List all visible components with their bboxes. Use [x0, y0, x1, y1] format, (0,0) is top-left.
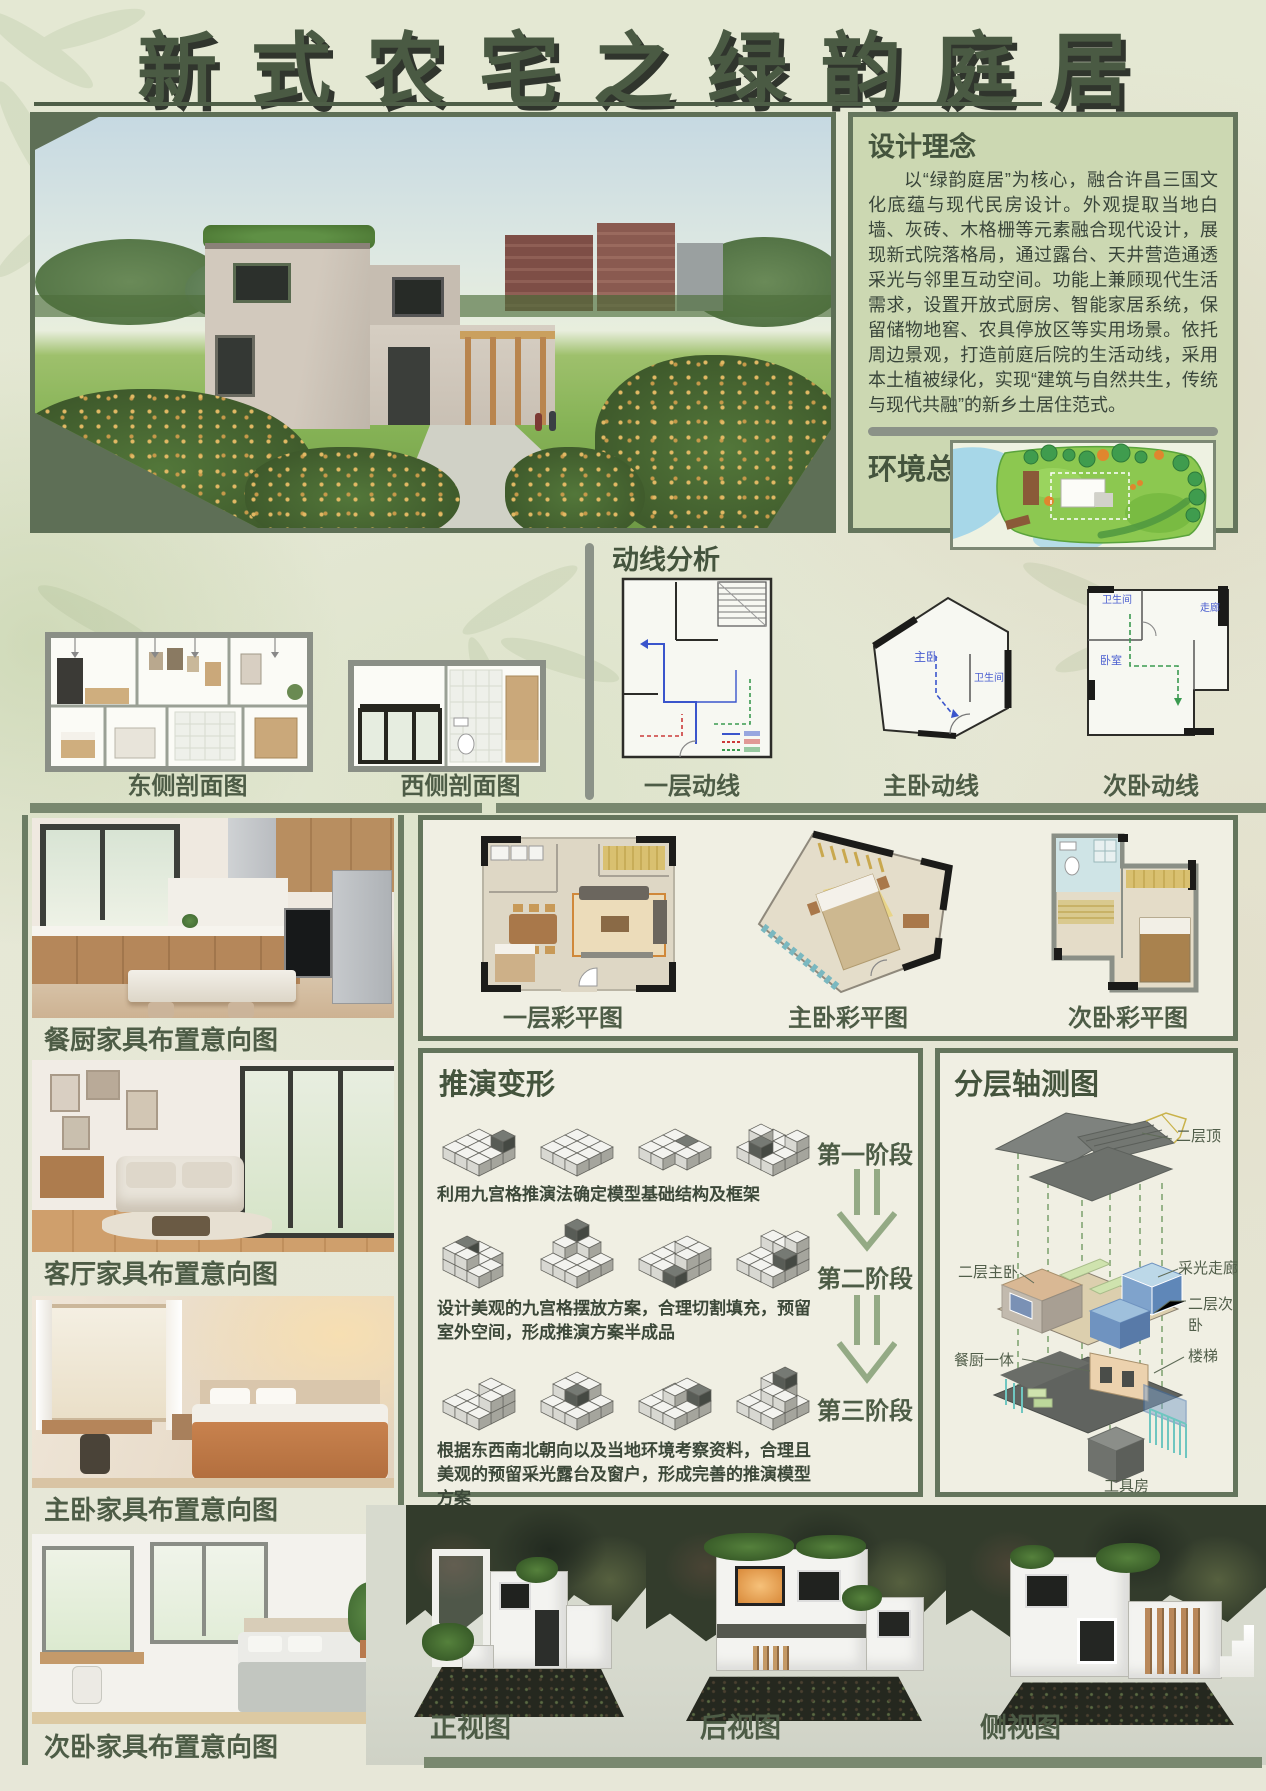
stage-2-label: 第二阶段	[813, 1259, 917, 1294]
axon-label-roof: 二层顶	[1176, 1125, 1221, 1146]
master-plan-caption: 主卧彩平图	[758, 998, 938, 1033]
house-porch-volume	[370, 325, 555, 425]
floor1-plan-caption: 一层彩平图	[473, 998, 653, 1033]
down-arrow-icon	[833, 1169, 897, 1253]
cube-row-stage1	[433, 1099, 819, 1179]
circulation-diagram-second: 卫生间 走廊 卧室	[1078, 570, 1238, 745]
floor1-color-plan	[481, 836, 676, 997]
model-side-caption: 侧视图	[980, 1706, 1061, 1745]
color-plans-panel: 一层彩平图 主卧彩平图 次卧彩平图	[418, 815, 1238, 1041]
kitchen-caption: 餐厨家具布置意向图	[44, 1020, 278, 1057]
design-concept-body: 以“绿韵庭居”为核心，融合许昌三国文化底蕴与现代民房设计。外观提取当地白墙、灰砖…	[868, 168, 1218, 418]
house-upper-box	[370, 265, 460, 325]
divider-bar	[496, 803, 1266, 813]
second-bedroom-caption: 次卧家具布置意向图	[44, 1727, 278, 1764]
poster-page: 新式农宅之绿韵庭居	[0, 0, 1266, 1791]
master-bedroom-photo	[32, 1296, 394, 1488]
second-color-plan	[1048, 830, 1203, 1001]
circulation-diagram-floor1	[618, 574, 776, 762]
cube-row-stage3	[433, 1353, 819, 1433]
master-bedroom-caption: 主卧家具布置意向图	[44, 1490, 278, 1527]
axon-label-master: 二层主卧	[958, 1261, 1018, 1282]
bottom-divider-bar	[424, 1757, 1262, 1768]
derivation-note-3: 根据东西南北朝向以及当地环境考察资料，合理且美观的预留采光露台及窗户，形成完善的…	[437, 1439, 825, 1511]
axon-label-kitchen: 餐厨一体	[954, 1349, 1014, 1370]
cube-row-stage2	[433, 1211, 819, 1291]
stage-1-label: 第一阶段	[813, 1135, 917, 1170]
title-underline	[34, 102, 1042, 106]
living-room-photo	[32, 1060, 394, 1252]
derivation-note-1: 利用九宫格推演法确定模型基础结构及框架	[437, 1183, 819, 1207]
model-front-caption: 正视图	[430, 1706, 511, 1745]
person-figure	[549, 411, 556, 431]
living-caption: 客厅家具布置意向图	[44, 1254, 278, 1291]
west-section-caption: 西侧剖面图	[368, 766, 553, 801]
kitchen-dining-photo	[32, 818, 394, 1018]
divider-bar	[868, 427, 1218, 436]
design-concept-heading: 设计理念	[868, 125, 1218, 164]
axonometric-panel: 分层轴测图	[935, 1048, 1238, 1497]
second-plan-caption: 次卧彩平图	[1038, 998, 1218, 1033]
room-label-sub-bath: 卫生间	[1102, 596, 1132, 606]
circulation-heading: 动线分析	[612, 538, 720, 577]
person-figure	[535, 413, 542, 431]
east-section-drawing	[45, 632, 313, 777]
derivation-heading: 推演变形	[439, 1061, 555, 1103]
master-color-plan	[753, 830, 953, 1001]
room-label-master: 主卧	[914, 652, 938, 662]
east-section-caption: 东侧剖面图	[95, 766, 280, 801]
west-section-drawing	[348, 660, 546, 777]
model-back-caption: 后视图	[700, 1706, 781, 1745]
axon-label-second-bed: 二层次卧	[1188, 1293, 1234, 1335]
site-plan-image	[950, 440, 1216, 550]
divider-bar	[30, 803, 482, 813]
axon-label-tool-room: 工具房	[1104, 1475, 1149, 1496]
derivation-note-2: 设计美观的九宫格摆放方案，合理切割填充，预留室外空间，形成推演方案半成品	[437, 1297, 825, 1345]
model-photo-back	[646, 1505, 946, 1765]
photo-column-left-edge	[22, 815, 28, 1765]
second-bedroom-photo	[32, 1534, 394, 1724]
stage-3-label: 第三阶段	[813, 1391, 917, 1426]
hero-render-frame	[30, 112, 836, 533]
circulation-caption-floor1: 一层动线	[622, 766, 762, 801]
vertical-divider-bar	[585, 543, 594, 800]
circulation-diagram-master: 主卧 卫生间	[858, 590, 1016, 745]
design-concept-panel: 设计理念 以“绿韵庭居”为核心，融合许昌三国文化底蕴与现代民房设计。外观提取当地…	[848, 112, 1238, 533]
hero-render-image	[35, 117, 831, 528]
axon-label-stairs: 楼梯	[1188, 1345, 1218, 1366]
circulation-caption-second: 次卧动线	[1081, 766, 1221, 801]
axon-label-light-corridor: 采光走廊	[1178, 1257, 1238, 1278]
room-label-bedroom: 卧室	[1100, 656, 1122, 666]
circulation-caption-master: 主卧动线	[861, 766, 1001, 801]
room-label-corridor: 走廊	[1200, 604, 1220, 614]
down-arrow-icon	[833, 1295, 897, 1385]
room-label-master-bath: 卫生间	[974, 674, 1004, 684]
derivation-panel: 推演变形 利用九宫格推演法确定模型基础结构及框架 设计美观的九宫格摆放方案，合理…	[418, 1048, 923, 1497]
